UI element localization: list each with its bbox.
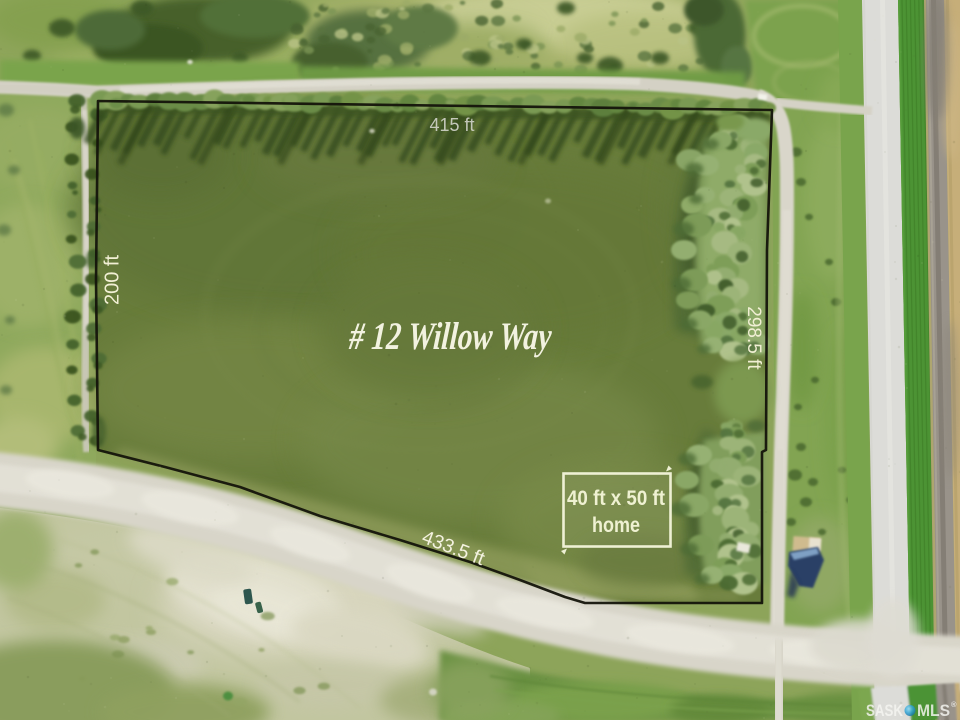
svg-text:MLS: MLS bbox=[917, 702, 950, 720]
svg-text:415 ft: 415 ft bbox=[429, 115, 474, 135]
svg-text:200 ft: 200 ft bbox=[101, 255, 123, 305]
svg-text:SASK: SASK bbox=[866, 702, 903, 720]
svg-text:home: home bbox=[592, 514, 640, 537]
svg-text:40 ft x 50 ft: 40 ft x 50 ft bbox=[567, 487, 665, 510]
svg-text:298.5 ft: 298.5 ft bbox=[743, 306, 764, 370]
svg-text:# 12 Willow Way: # 12 Willow Way bbox=[347, 315, 553, 358]
svg-text:®: ® bbox=[951, 700, 957, 709]
